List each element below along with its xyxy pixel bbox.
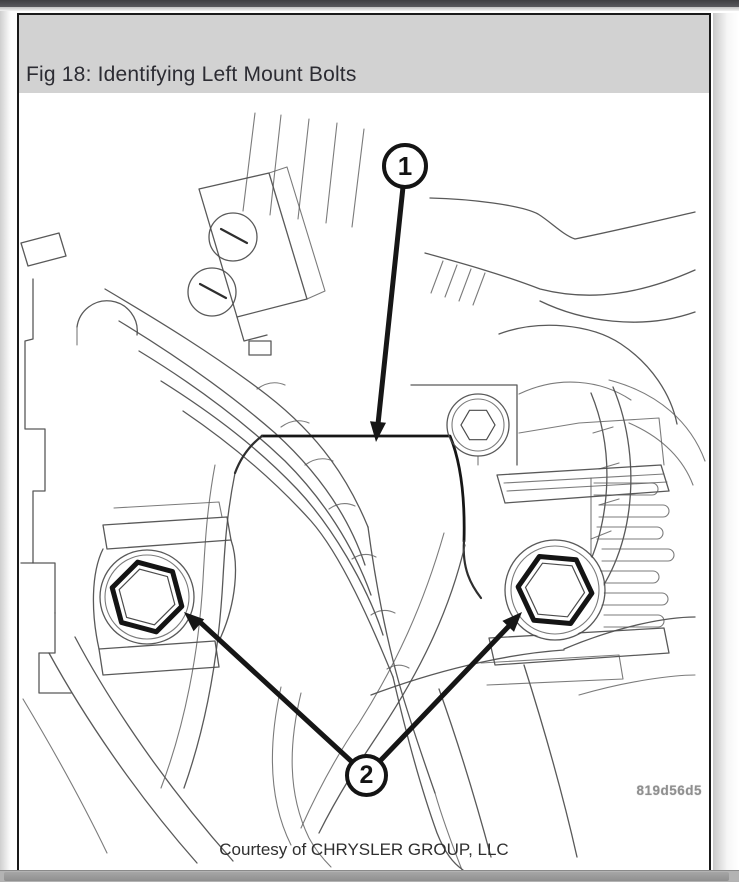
callout-2-number: 2 [360, 761, 374, 790]
body-panel-lines [425, 198, 705, 485]
callout-2-arrows [184, 612, 522, 761]
courtesy-credit: Courtesy of CHRYSLER GROUP, LLC [19, 840, 709, 860]
figure-title: Fig 18: Identifying Left Mount Bolts [26, 63, 357, 87]
figure-watermark: 819d56d5 [636, 783, 702, 798]
page-right-shadow [713, 13, 739, 870]
callout-1-number: 1 [398, 151, 412, 182]
figure-header: Fig 18: Identifying Left Mount Bolts [19, 15, 709, 93]
callout-1: 1 [382, 143, 428, 189]
window-top-bar-edge [0, 7, 739, 11]
horizontal-scrollbar[interactable] [0, 870, 739, 882]
figure-frame: Fig 18: Identifying Left Mount Bolts [17, 13, 711, 872]
scrollbar-thumb[interactable] [4, 872, 729, 881]
connector-bracket [188, 167, 325, 355]
callout-2: 2 [345, 754, 388, 797]
figure-body: 1 2 819d56d5 Courtesy of CHRYSLER GROUP,… [19, 93, 709, 870]
window-top-bar [0, 0, 739, 7]
right-mount-bolt [481, 418, 674, 685]
wiring-harness [105, 113, 463, 870]
callout-1-arrow [370, 187, 403, 442]
left-mount-bolt [93, 502, 235, 675]
page-left-shadow [0, 11, 11, 870]
